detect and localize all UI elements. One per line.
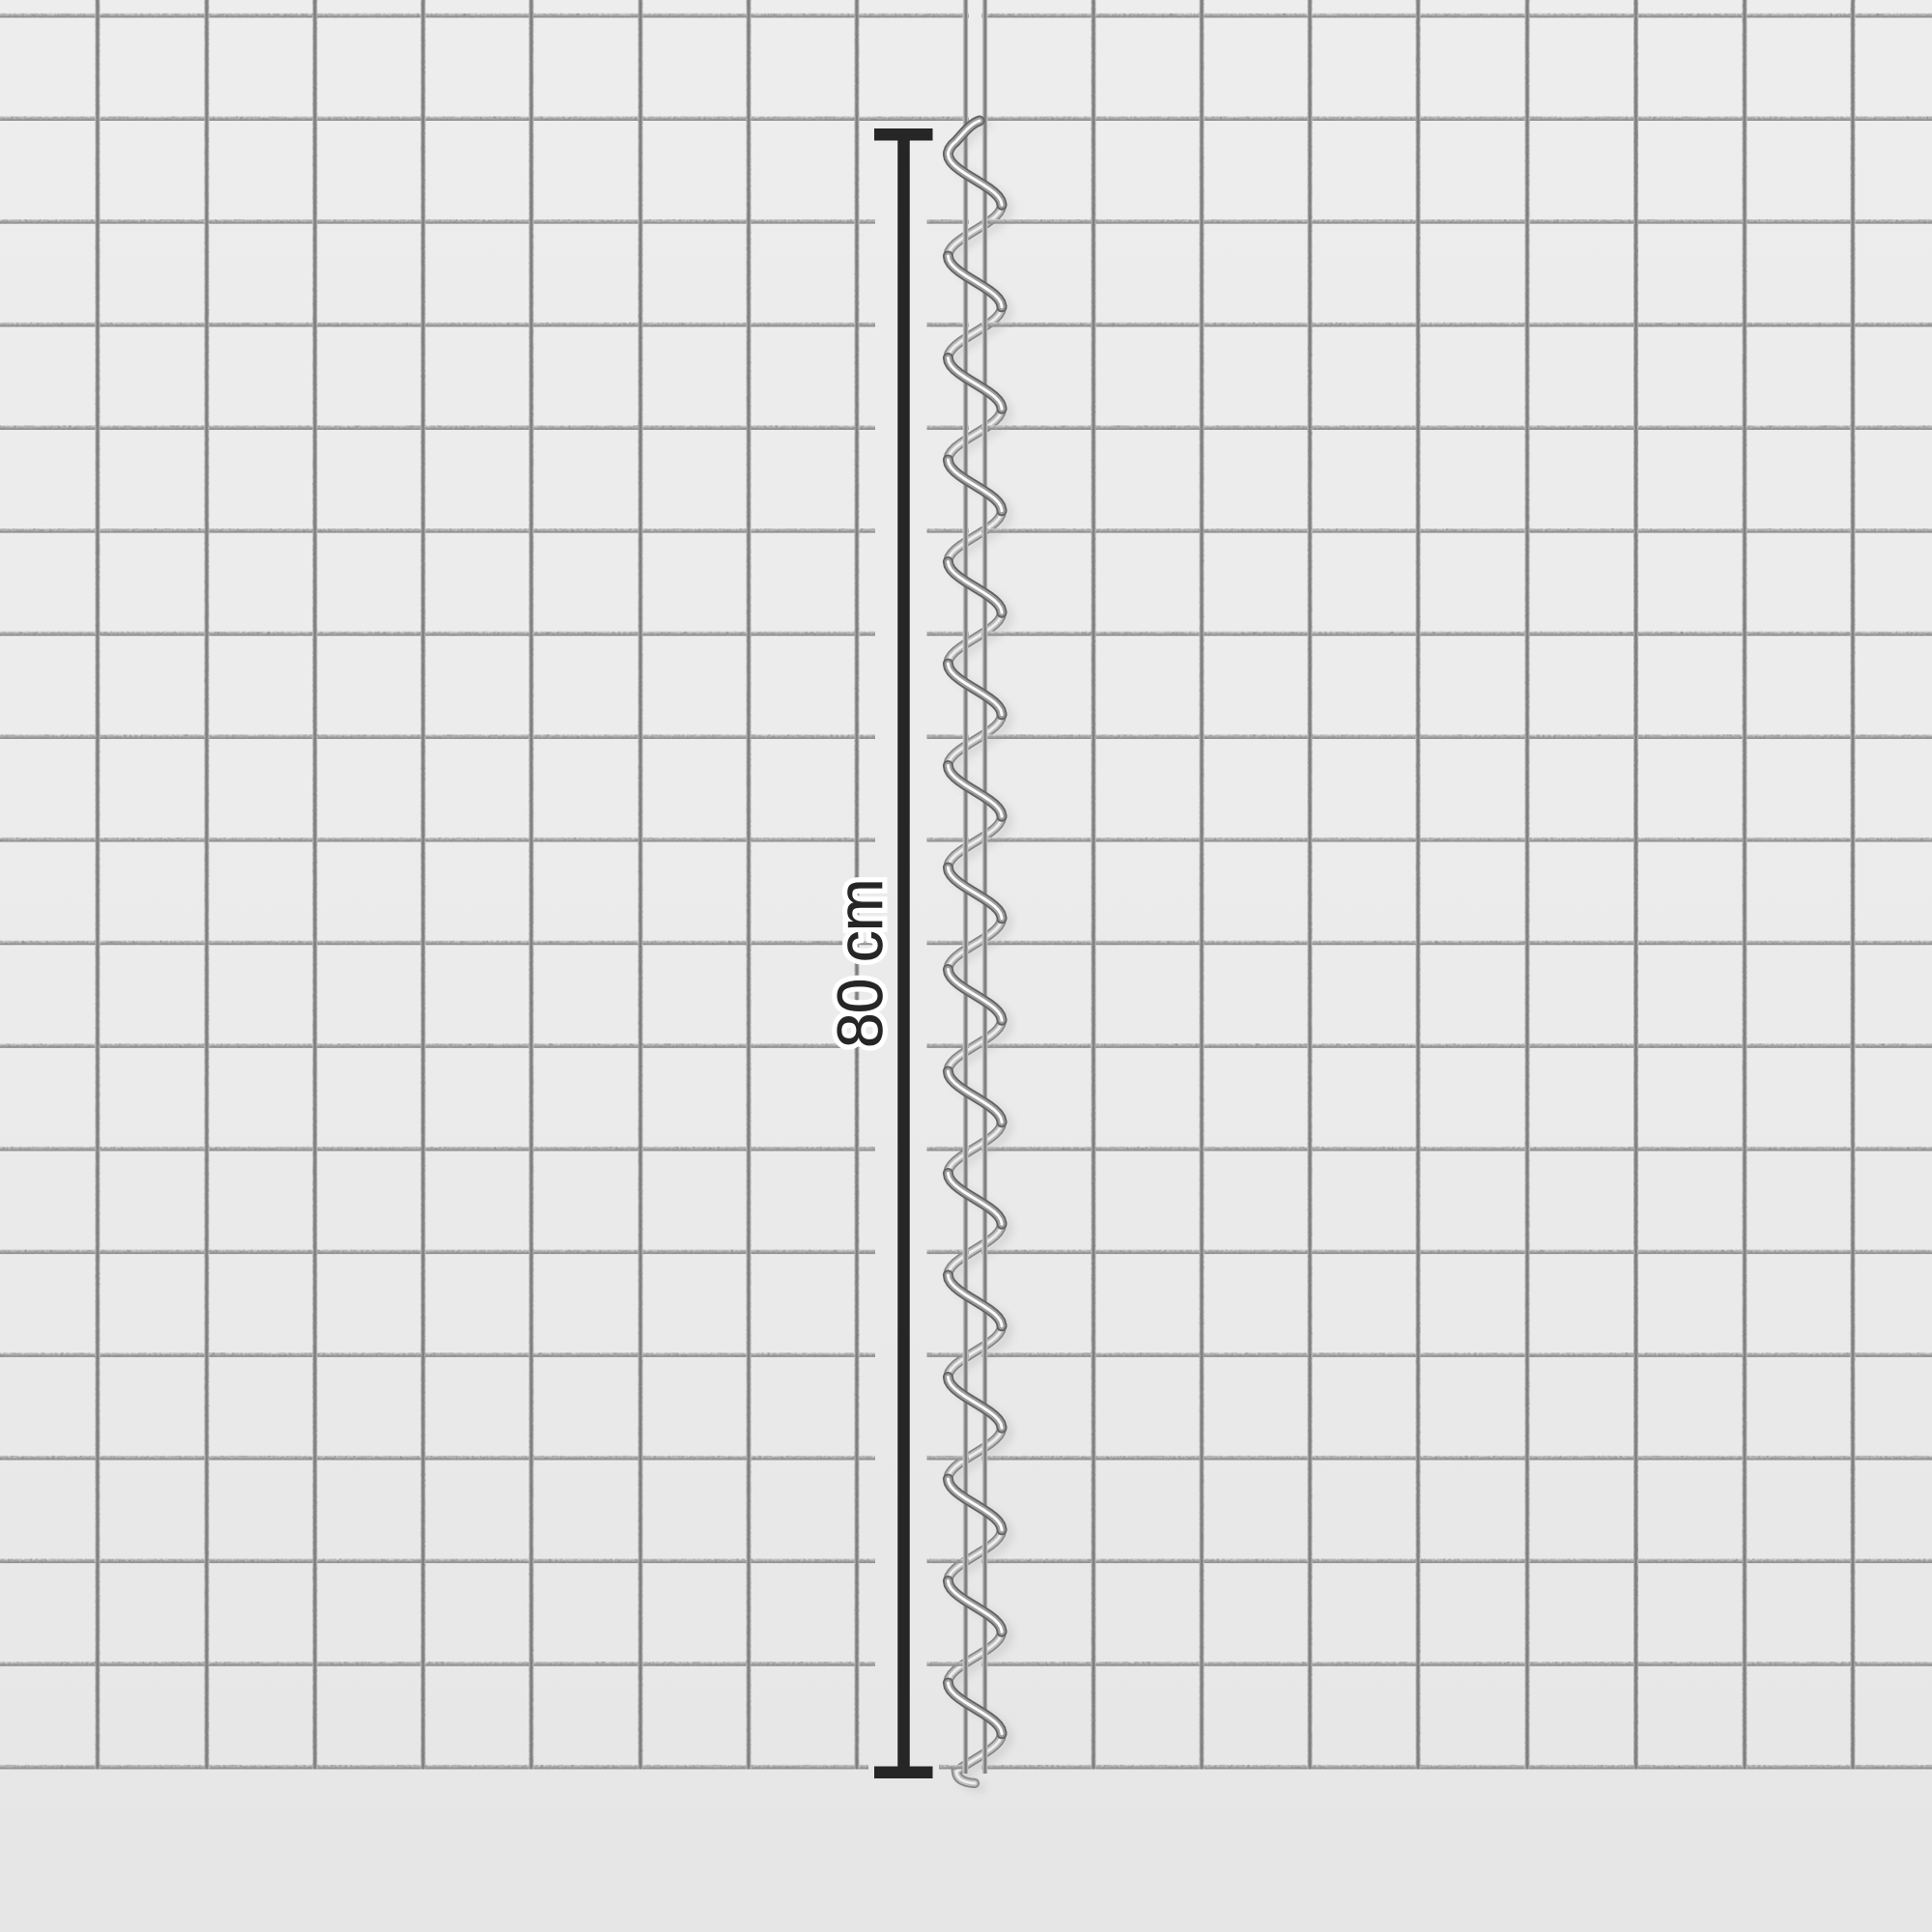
svg-text:80 cm: 80 cm — [824, 879, 895, 1048]
